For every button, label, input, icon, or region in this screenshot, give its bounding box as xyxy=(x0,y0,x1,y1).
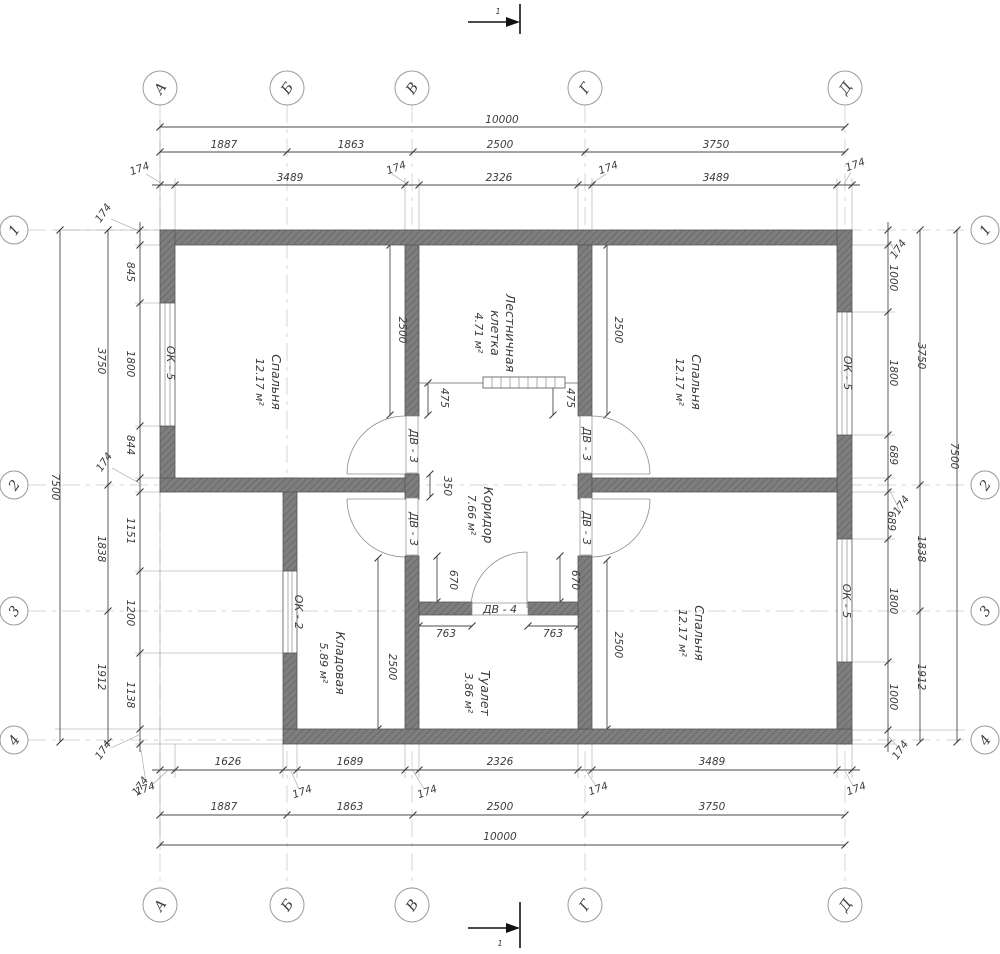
dim-bottom-detail-8: 174 xyxy=(845,780,868,798)
room-name: Коридор xyxy=(481,487,496,544)
label-door-dv4: ДВ - 4 xyxy=(482,603,517,616)
dim-bottom-detail-1: 1626 xyxy=(215,756,242,768)
dim-left-span-0: 3750 xyxy=(95,348,107,375)
wall-pantry-left-lower xyxy=(283,653,297,729)
label-door-dv3-right-bottom: ДВ - 3 xyxy=(580,510,593,545)
label-window-ok2: ОК - 2 xyxy=(292,595,305,629)
dim-right-total: 7500 xyxy=(948,443,960,470)
room-name-line1: Лестничная xyxy=(503,293,518,373)
wall-corridor-right-pier xyxy=(578,474,592,499)
section-mark-bottom: 1 xyxy=(468,902,520,948)
room-labels: Спальня 12.17 м² Лестничная клетка 4.71 … xyxy=(253,293,707,717)
room-name-line2: клетка xyxy=(488,310,503,356)
dim-corridor-left-670: 670 xyxy=(447,570,459,590)
dim-right-detail-8: 174 xyxy=(890,739,911,762)
dim-toilet-right-763: 763 xyxy=(543,628,563,640)
label-door-dv3-left-bottom: ДВ - 3 xyxy=(407,511,420,546)
wall-corridor-right-upper xyxy=(578,245,592,416)
dim-left-detail-1: 845 xyxy=(124,262,136,282)
dim-top-span-2: 2500 xyxy=(487,139,514,151)
dim-left-detail-0: 174 xyxy=(93,202,114,225)
wall-corridor-left-pier xyxy=(405,474,419,499)
dim-bottom-span-3: 3750 xyxy=(699,801,726,813)
dim-right-detail-6: 1800 xyxy=(887,588,899,615)
section-arrow-icon xyxy=(506,923,520,933)
dim-pantry-depth: 2500 xyxy=(386,654,398,681)
dim-top-detail-0: 174 xyxy=(128,160,151,178)
dim-bottom-total: 10000 xyxy=(483,831,517,843)
room-name: Спальня xyxy=(692,605,707,661)
wall-toilet-top-left xyxy=(419,602,472,615)
section-arrow-icon xyxy=(506,17,520,27)
dim-left-detail-7: 1138 xyxy=(124,682,136,709)
dim-top-detail-3: 2326 xyxy=(486,172,513,184)
room-area: 3.86 м² xyxy=(462,673,475,714)
wall-exterior-right-1 xyxy=(837,230,852,312)
dim-left-span-2: 1912 xyxy=(95,664,107,691)
dim-top-span-1: 1863 xyxy=(338,139,365,151)
doors xyxy=(347,416,650,615)
dim-bottom-span-2: 2500 xyxy=(487,801,514,813)
label-window-ok5-right-upper: ОК - 5 xyxy=(841,356,854,390)
dim-left-detail-8: 174 xyxy=(93,739,114,762)
room-area: 12.17 м² xyxy=(253,358,266,406)
dim-bedroom-left-depth: 2500 xyxy=(396,317,408,344)
room-label-toilet: Туалет 3.86 м² xyxy=(462,670,493,716)
dim-top-detail-4: 174 xyxy=(597,159,620,177)
dim-bottom-detail-3: 1689 xyxy=(337,756,364,768)
label-window-ok5-right-lower: ОК - 5 xyxy=(840,584,853,618)
dim-pier-350: 350 xyxy=(441,476,453,496)
room-label-bedroom-top-right: Спальня 12.17 м² xyxy=(673,354,704,410)
dim-top-detail-6: 174 xyxy=(844,156,867,174)
dim-bottom-detail-2: 174 xyxy=(291,783,314,801)
dim-left-detail-3: 844 xyxy=(124,435,136,455)
dim-top-detail-2: 174 xyxy=(385,159,408,177)
dim-right-detail-0: 174 xyxy=(888,238,909,261)
dimension-labels-left: 7500 3750 1838 1912 174 845 1800 844 174… xyxy=(49,202,151,798)
room-label-stairwell: Лестничная клетка 4.71 м² xyxy=(472,293,518,373)
room-name: Спальня xyxy=(689,354,704,410)
dim-top-total: 10000 xyxy=(485,114,519,126)
dim-bottom-span-0: 1887 xyxy=(211,801,238,813)
wall-bedrooms-right-divider xyxy=(592,478,837,492)
room-area: 7.66 м² xyxy=(465,495,478,536)
room-name: Туалет xyxy=(478,670,493,716)
dim-left-total: 7500 xyxy=(49,474,61,501)
door-swings xyxy=(347,416,650,608)
dim-right-detail-7: 1000 xyxy=(887,684,899,711)
floor-plan-sheet: А Б В Г Д А Б В Г Д 1 2 3 4 1 2 3 4 1000… xyxy=(0,0,1000,954)
label-door-dv3-left-top: ДВ - 3 xyxy=(407,428,420,463)
wall-exterior-right-2 xyxy=(837,435,852,539)
label-door-dv3-right-top: ДВ - 3 xyxy=(580,426,593,461)
dim-corridor-right-670: 670 xyxy=(569,570,581,590)
dim-top-detail-5: 3489 xyxy=(703,172,730,184)
section-mark-top: 1 xyxy=(468,4,520,34)
wall-exterior-top xyxy=(160,230,852,245)
dim-right-span-0: 3750 xyxy=(915,343,927,370)
dim-right-span-1: 1838 xyxy=(915,536,927,563)
room-label-bedroom-left: Спальня 12.17 м² xyxy=(253,354,284,410)
room-label-pantry: Кладовая 5.89 м² xyxy=(317,631,348,695)
dim-toilet-left-763: 763 xyxy=(436,628,456,640)
floor-plan-canvas: А Б В Г Д А Б В Г Д 1 2 3 4 1 2 3 4 1000… xyxy=(0,0,1000,954)
dim-top-span-3: 3750 xyxy=(703,139,730,151)
dim-right-detail-5: 689 xyxy=(885,511,897,531)
dim-stair-right: 475 xyxy=(564,388,576,408)
dim-bedroom-tr-depth: 2500 xyxy=(612,317,624,344)
room-area: 12.17 м² xyxy=(673,358,686,406)
dim-bottom-detail-6: 174 xyxy=(587,780,610,798)
dimension-labels-right: 7500 3750 1838 1912 174 1000 1800 689 17… xyxy=(885,238,960,762)
room-label-bedroom-bottom-right: Спальня 12.17 м² xyxy=(676,605,707,661)
room-label-corridor: Коридор 7.66 м² xyxy=(465,487,496,544)
stairwell-symbol xyxy=(419,377,578,388)
dim-top-detail-1: 3489 xyxy=(277,172,304,184)
room-area: 4.71 м² xyxy=(472,313,485,354)
dim-left-detail-2: 1800 xyxy=(124,351,136,378)
room-name: Кладовая xyxy=(333,631,348,695)
dim-right-detail-2: 1800 xyxy=(887,360,899,387)
dimension-labels-top: 10000 1887 1863 2500 3750 174 3489 174 2… xyxy=(128,114,867,184)
dim-bottom-span-1: 1863 xyxy=(337,801,364,813)
dim-right-detail-1: 1000 xyxy=(887,265,899,292)
wall-bedroom-left-bottom xyxy=(160,478,419,492)
wall-toilet-top-right xyxy=(528,602,578,615)
room-area: 12.17 м² xyxy=(676,609,689,657)
dim-right-detail-3: 689 xyxy=(887,445,899,465)
label-window-ok5-left: ОК - 5 xyxy=(164,346,177,380)
dim-bottom-detail-4: 174 xyxy=(416,783,439,801)
dim-left-span-1: 1838 xyxy=(95,536,107,563)
room-name: Спальня xyxy=(269,354,284,410)
dim-bedroom-br-depth: 2500 xyxy=(612,632,624,659)
section-number-bottom: 1 xyxy=(497,939,502,948)
dim-top-span-0: 1887 xyxy=(211,139,238,151)
room-area: 5.89 м² xyxy=(317,643,330,684)
dim-left-detail-6: 1200 xyxy=(124,600,136,627)
dim-bottom-detail-7: 3489 xyxy=(699,756,726,768)
axis-grid xyxy=(28,105,971,888)
dim-left-detail-4: 174 xyxy=(94,451,115,474)
dimension-labels-bottom: 174 1626 174 1689 174 2326 174 3489 174 … xyxy=(134,756,868,843)
wall-corridor-left-lower xyxy=(405,556,419,729)
dim-left-detail-5: 1151 xyxy=(124,518,136,545)
dim-right-span-2: 1912 xyxy=(915,664,927,691)
wall-exterior-bottom xyxy=(283,729,852,744)
section-number-top: 1 xyxy=(495,7,500,16)
dim-stair-left: 475 xyxy=(438,388,450,408)
dim-bottom-detail-5: 2326 xyxy=(487,756,514,768)
wall-exterior-left-upper xyxy=(160,230,175,303)
